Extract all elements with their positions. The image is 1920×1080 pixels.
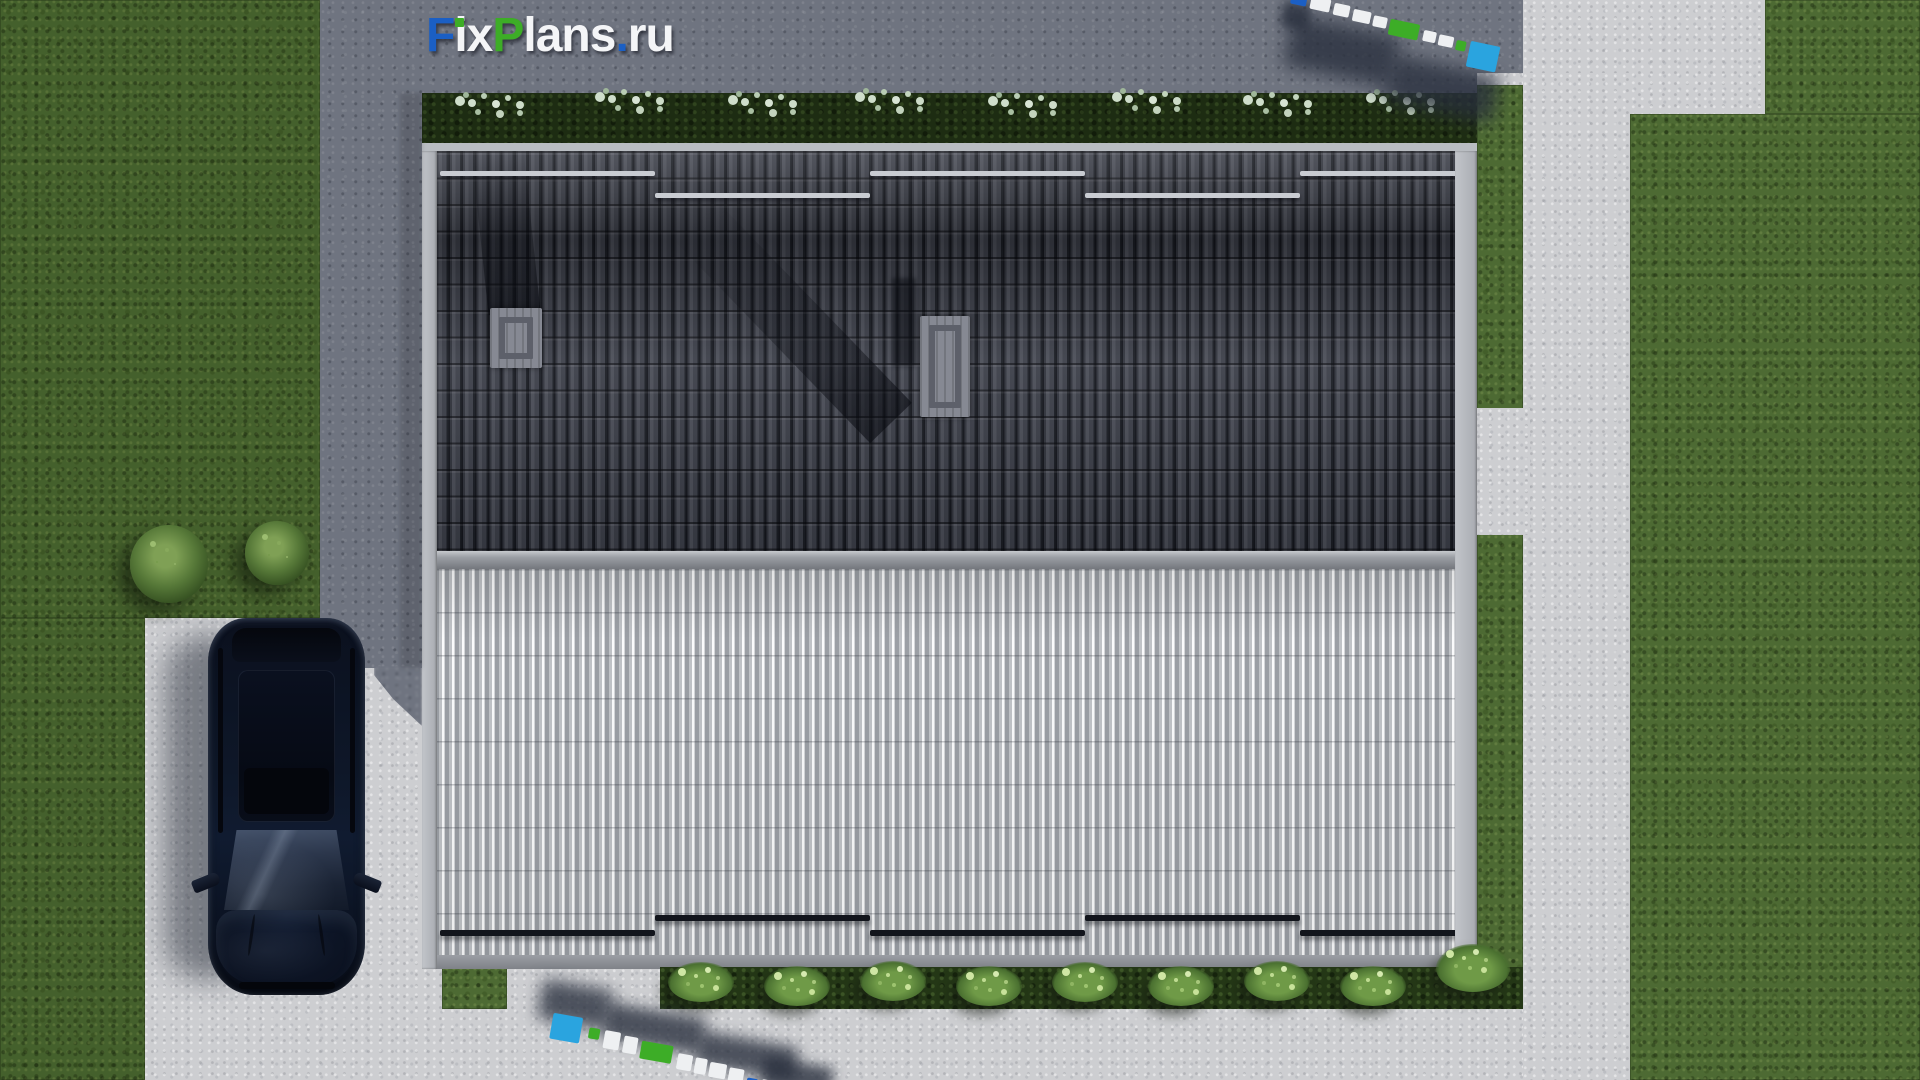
logo-letter-f: F — [426, 12, 454, 60]
path-side-connector — [1470, 408, 1530, 535]
shrub — [1148, 966, 1214, 1006]
snow-guard — [870, 930, 1085, 936]
shrub — [956, 966, 1022, 1006]
logo-fixplans: FixPlans.ru — [426, 12, 674, 60]
car-roof-rail-right — [350, 648, 355, 833]
snow-guard — [1085, 915, 1300, 921]
snow-guard — [870, 171, 1085, 176]
car-suv-top-view — [208, 618, 365, 995]
car-mirror-right — [352, 871, 383, 894]
car-rear-window — [232, 628, 341, 662]
bush — [245, 521, 309, 585]
flower-bush — [855, 92, 865, 102]
shrub — [764, 966, 830, 1006]
flower-bush — [1243, 95, 1253, 105]
roof-fascia-left — [422, 151, 437, 969]
flower-bush — [728, 95, 738, 105]
grass-top-right — [1765, 0, 1920, 114]
roof-fascia-right — [1455, 151, 1477, 969]
hood-crease — [247, 914, 256, 956]
flower-bush — [988, 96, 998, 106]
chimney-flue — [499, 317, 533, 359]
aerial-render-scene: FixPlans.ru — [0, 0, 1920, 1080]
concrete-pad-shadow-notch — [374, 666, 422, 726]
car-hood — [216, 910, 357, 985]
car-sunroof — [244, 768, 329, 814]
hedge-top — [422, 93, 1477, 150]
house-roof — [422, 143, 1477, 969]
grass-patch-below-roof — [442, 967, 507, 1009]
shrub — [1052, 962, 1118, 1002]
logo-letters-ru: ru — [628, 12, 674, 60]
flower-bush — [455, 96, 465, 106]
path-right-vertical — [1523, 73, 1630, 1080]
chimney — [490, 308, 542, 368]
car-roof-rail-left — [218, 648, 223, 833]
roof-top-trim — [422, 143, 1477, 151]
shrub — [1436, 944, 1510, 992]
grass-right-lawn — [1630, 114, 1920, 1080]
car-windshield — [224, 830, 349, 910]
roof-ridge-band — [422, 551, 1477, 569]
logo-letter-i: i — [454, 12, 466, 60]
snow-guard — [440, 930, 655, 936]
car-grille — [239, 982, 335, 989]
flower-bush — [595, 92, 605, 102]
snow-guard — [440, 171, 655, 176]
shrub — [1244, 961, 1310, 1001]
snow-guard — [1300, 171, 1460, 176]
concrete-pad-top-right — [1477, 0, 1523, 73]
logo-dot: . — [615, 12, 627, 60]
flower-bush — [1366, 93, 1376, 103]
roof-slope-light-tiles — [422, 569, 1477, 955]
grass-strip-right-of-house — [1477, 85, 1523, 1008]
snow-guard — [655, 193, 870, 198]
logo-letter-x: x — [467, 12, 493, 60]
chimney-flue — [929, 325, 961, 408]
hood-crease — [317, 914, 326, 956]
chimney — [920, 316, 970, 417]
logo-letters-lans: lans — [523, 12, 615, 60]
snow-guard — [1300, 930, 1460, 936]
shrub — [860, 961, 926, 1001]
logo-letter-p: P — [492, 12, 523, 60]
snow-guard — [655, 915, 870, 921]
shrub — [1340, 966, 1406, 1006]
shrub — [668, 962, 734, 1002]
bush — [130, 525, 208, 603]
house-shadow-left — [400, 93, 422, 668]
flower-bush — [1112, 92, 1122, 102]
snow-guard — [1085, 193, 1300, 198]
grass-left-column — [0, 618, 145, 1080]
